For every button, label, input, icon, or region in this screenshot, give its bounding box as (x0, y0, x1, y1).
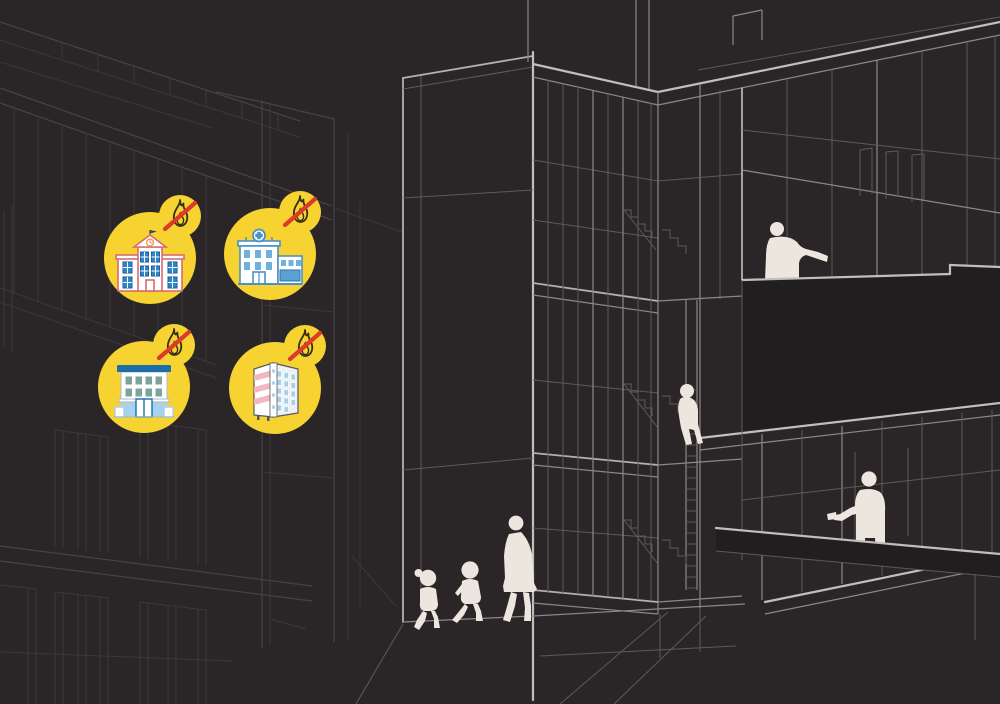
child-on-stairs (678, 384, 703, 445)
badge-house (86, 305, 226, 445)
illustration-stage (0, 0, 1000, 704)
person-on-balcony (765, 222, 828, 281)
people-silhouettes (414, 516, 537, 630)
residential-house-icon (114, 365, 174, 417)
balcony-parapet (700, 265, 1000, 450)
badge-apartment (217, 306, 357, 446)
badge-school (92, 176, 232, 316)
badge-hospital (212, 172, 352, 312)
child-walking (452, 561, 483, 623)
courtyard-ground (533, 604, 745, 704)
apartment-building-icon (254, 363, 298, 421)
